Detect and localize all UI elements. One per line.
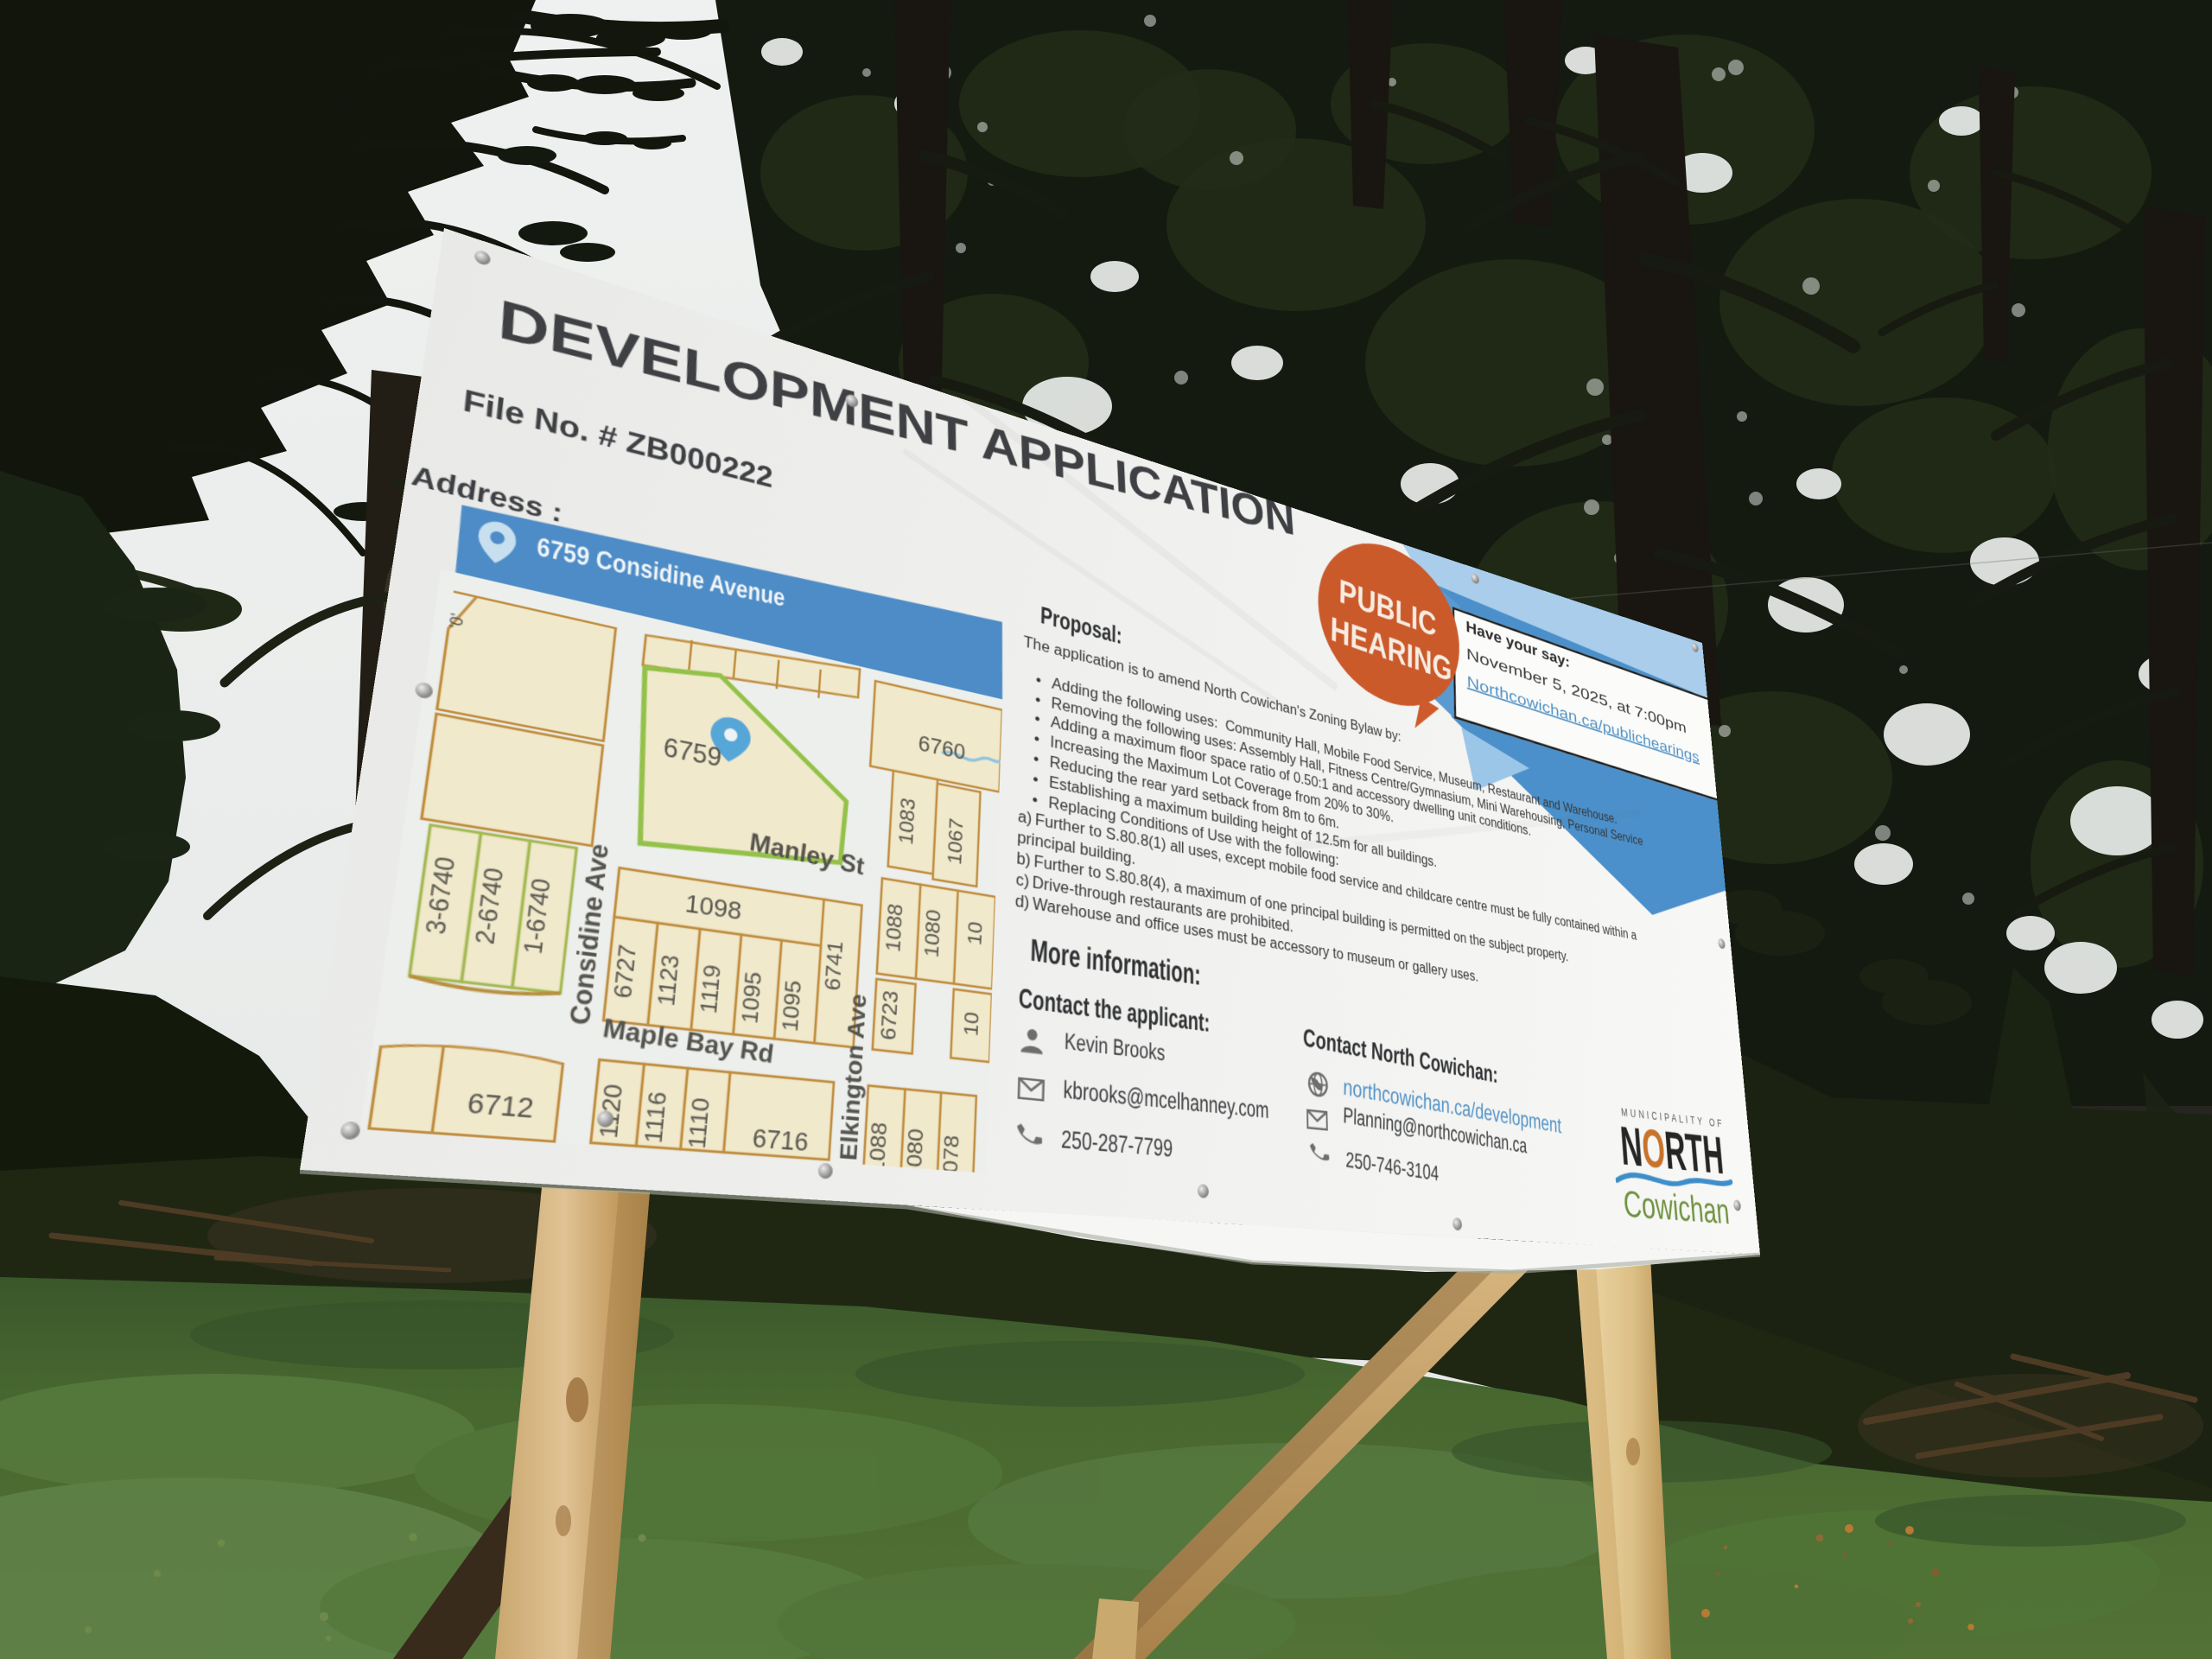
- svg-text:6723: 6723: [877, 989, 903, 1041]
- svg-text:1119: 1119: [696, 963, 726, 1015]
- svg-text:6727: 6727: [609, 944, 642, 1000]
- svg-text:10: 10: [964, 920, 987, 947]
- svg-text:1088: 1088: [882, 902, 907, 953]
- svg-text:1095: 1095: [778, 979, 806, 1033]
- svg-text:6712: 6712: [466, 1086, 536, 1124]
- svg-text:1110: 1110: [684, 1096, 715, 1149]
- svg-text:6716: 6716: [752, 1122, 810, 1157]
- svg-text:1080: 1080: [921, 908, 945, 959]
- svg-text:1123: 1123: [653, 953, 684, 1007]
- svg-text:1078: 1078: [938, 1135, 963, 1173]
- svg-text:1116: 1116: [640, 1090, 672, 1144]
- svg-text:1080: 1080: [902, 1128, 928, 1173]
- svg-text:1120: 1120: [594, 1083, 628, 1139]
- svg-text:1095: 1095: [737, 970, 766, 1025]
- svg-text:1067: 1067: [944, 817, 968, 866]
- svg-text:6741: 6741: [821, 939, 848, 992]
- svg-text:10: 10: [961, 1011, 983, 1038]
- svg-text:1083: 1083: [895, 796, 919, 846]
